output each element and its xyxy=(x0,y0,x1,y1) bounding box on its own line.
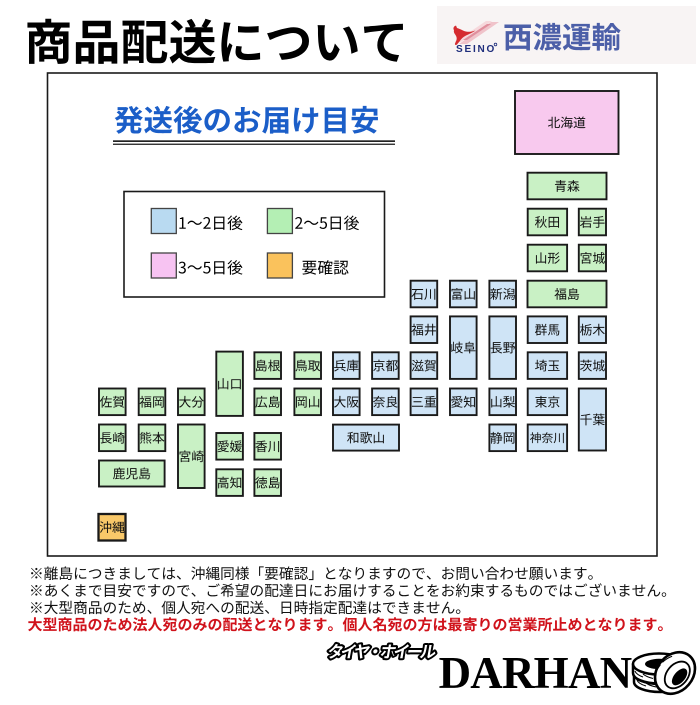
svg-text:DARHAN: DARHAN xyxy=(439,648,632,698)
svg-text:SEINO: SEINO xyxy=(456,44,496,55)
